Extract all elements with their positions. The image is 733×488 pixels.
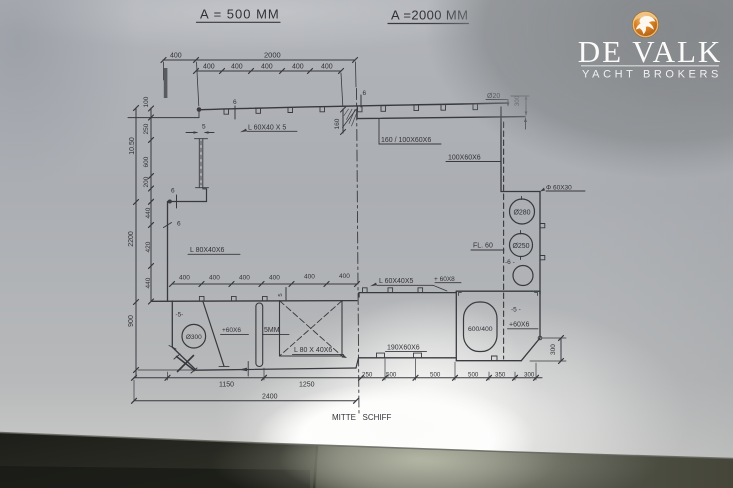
svg-text:SCHIFF: SCHIFF	[363, 413, 392, 422]
svg-text:+60X6: +60X6	[222, 327, 241, 334]
svg-text:400: 400	[203, 64, 215, 71]
svg-text:5MM: 5MM	[264, 327, 280, 334]
svg-text:FL. 60: FL. 60	[473, 243, 493, 250]
svg-text:500: 500	[468, 371, 479, 378]
svg-text:600: 600	[143, 156, 150, 167]
svg-text:6: 6	[233, 99, 237, 106]
svg-text:Ø300: Ø300	[186, 334, 202, 341]
svg-text:L 60X40 X 5: L 60X40 X 5	[248, 125, 286, 132]
svg-text:A = 500 MM: A = 500 MM	[200, 7, 280, 22]
svg-text:DE VALK: DE VALK	[578, 34, 723, 69]
svg-text:250: 250	[143, 123, 150, 134]
svg-text:-5 -: -5 -	[511, 307, 521, 314]
svg-text:600/400: 600/400	[468, 326, 493, 333]
svg-text:400: 400	[231, 64, 243, 71]
svg-text:400: 400	[239, 275, 250, 282]
svg-text:440: 440	[145, 207, 152, 218]
svg-text:Ø280: Ø280	[513, 210, 530, 217]
svg-text:400: 400	[179, 275, 190, 282]
svg-text:350: 350	[495, 371, 506, 378]
svg-text:200: 200	[143, 176, 150, 187]
svg-text:10.50: 10.50	[129, 137, 136, 155]
svg-text:-6 -: -6 -	[505, 259, 515, 266]
svg-text:+60X6: +60X6	[509, 322, 530, 329]
svg-text:100X60X6: 100X60X6	[448, 155, 481, 162]
svg-text:300: 300	[524, 371, 535, 378]
svg-text:500: 500	[386, 371, 397, 378]
svg-text:100: 100	[143, 96, 150, 107]
svg-text:400: 400	[304, 274, 315, 281]
svg-text:L 80X40X6: L 80X40X6	[190, 247, 224, 254]
svg-text:900: 900	[128, 315, 135, 327]
svg-text:MITTE: MITTE	[332, 413, 356, 422]
svg-text:250: 250	[362, 371, 373, 378]
svg-text:-5-: -5-	[176, 312, 184, 319]
svg-text:160 / 100X60X6: 160 / 100X60X6	[381, 137, 431, 144]
svg-text:+ 60X8: + 60X8	[434, 276, 455, 283]
svg-text:1250: 1250	[299, 382, 315, 389]
svg-text:1150: 1150	[219, 382, 234, 389]
svg-text:400: 400	[209, 275, 220, 282]
svg-text:400: 400	[170, 53, 182, 60]
svg-text:420: 420	[145, 241, 152, 252]
svg-text:L 60X40X5: L 60X40X5	[379, 278, 413, 285]
svg-text:400: 400	[261, 64, 273, 71]
svg-text:L 80 X 40X6: L 80 X 40X6	[294, 347, 332, 354]
svg-text:400: 400	[321, 64, 333, 71]
svg-text:YACHT BROKERS: YACHT BROKERS	[582, 69, 722, 81]
svg-text:440: 440	[145, 277, 152, 288]
svg-text:500: 500	[430, 371, 441, 378]
svg-text:400: 400	[339, 273, 350, 280]
svg-text:400: 400	[269, 275, 280, 282]
svg-text:190X60X6: 190X60X6	[387, 345, 420, 352]
svg-text:2400: 2400	[262, 393, 278, 400]
svg-text:400: 400	[292, 64, 304, 71]
svg-text:Ø250: Ø250	[512, 243, 529, 250]
svg-text:Φ 60X30: Φ 60X30	[546, 185, 572, 192]
svg-text:6: 6	[177, 221, 181, 228]
svg-text:6: 6	[171, 188, 175, 195]
svg-text:5: 5	[278, 293, 284, 296]
svg-text:5: 5	[202, 124, 206, 131]
svg-text:160: 160	[334, 118, 341, 129]
svg-text:6: 6	[363, 90, 367, 97]
svg-text:300: 300	[550, 344, 557, 355]
svg-text:2200: 2200	[128, 231, 135, 247]
svg-text:2000: 2000	[264, 51, 281, 60]
